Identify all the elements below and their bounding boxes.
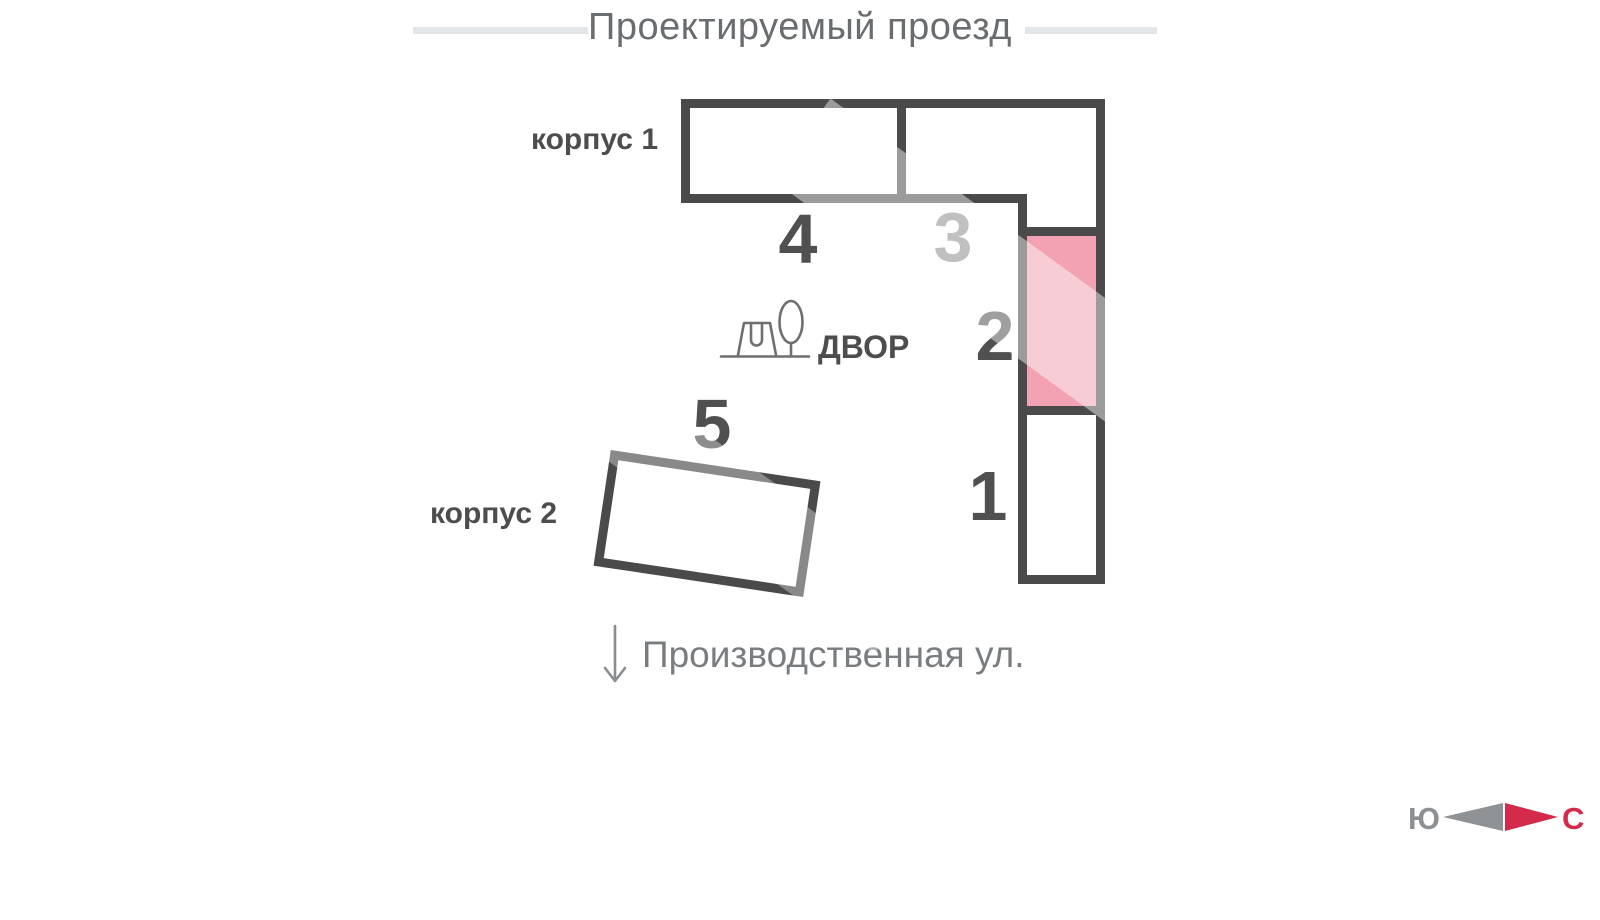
compass-arrows-icon	[1443, 802, 1559, 832]
korpus2-shape[interactable]	[594, 450, 821, 597]
korpus1-top-wing[interactable]	[681, 99, 1105, 203]
section-5-number[interactable]: 5	[667, 387, 757, 461]
down-arrow-icon	[600, 624, 630, 686]
courtyard-label: ДВОР	[818, 329, 909, 366]
bottom-street-label: Производственная ул.	[642, 634, 1025, 676]
compass-south-label: Ю	[1408, 801, 1440, 837]
courtyard-icons	[718, 296, 812, 360]
compass-north-label: С	[1562, 801, 1584, 837]
site-plan: Проектируемый проезд корпус 1 корпус 2 4…	[0, 0, 1600, 920]
section-2-number[interactable]: 2	[950, 299, 1040, 373]
top-street-label: Проектируемый проезд	[0, 6, 1600, 49]
street-line-right	[1025, 27, 1157, 34]
section-3-number[interactable]: 3	[908, 200, 998, 274]
tree-icon	[780, 301, 803, 356]
playground-icon	[738, 323, 776, 355]
south-triangle	[1443, 803, 1503, 831]
korpus1-section-divider	[897, 99, 906, 203]
korpus1-label: корпус 1	[458, 123, 658, 157]
north-triangle	[1505, 803, 1558, 831]
section-4-number[interactable]: 4	[753, 202, 843, 276]
section-1-number[interactable]: 1	[943, 459, 1033, 533]
korpus2-label: корпус 2	[430, 497, 557, 531]
